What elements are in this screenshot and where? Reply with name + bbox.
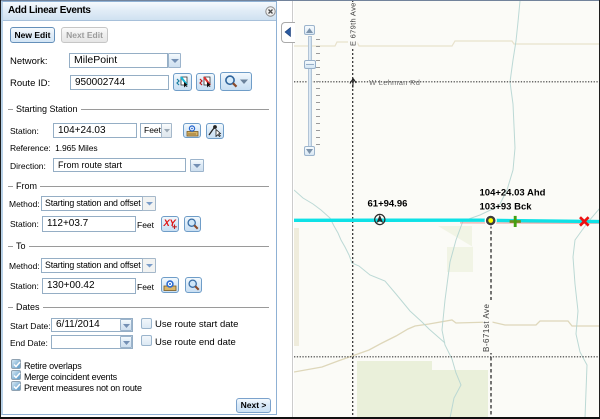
svg-text:103+93 Bck: 103+93 Bck — [480, 201, 533, 212]
svg-text:B-671st Ave: B-671st Ave — [482, 303, 491, 352]
svg-text:E 679th Ave: E 679th Ave — [349, 2, 358, 46]
svg-text:W Lehman Rd: W Lehman Rd — [369, 78, 420, 87]
svg-text:104+24.03 Ahd: 104+24.03 Ahd — [480, 187, 546, 198]
svg-text:61+94.96: 61+94.96 — [368, 198, 408, 209]
